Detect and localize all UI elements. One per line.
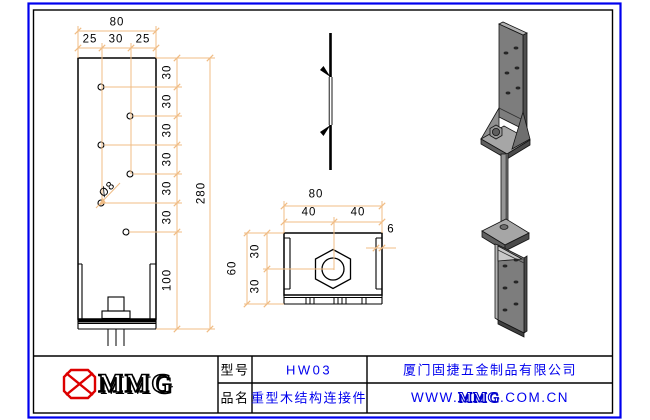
iso-view	[481, 22, 530, 337]
dim-plan-depth-seg-2: 30	[250, 279, 262, 294]
website-brand: MMG	[458, 390, 500, 406]
front-view-holes	[98, 84, 133, 235]
dim-front-total-height: 280	[196, 182, 208, 204]
dim-front-row-4: 30	[162, 152, 174, 167]
dim-front-row-5: 30	[162, 181, 174, 196]
dim-front-row-6: 30	[162, 210, 174, 225]
website-suffix: .COM.CN	[500, 390, 569, 405]
product-label: 品名	[220, 392, 249, 405]
dim-plan-half-right: 40	[351, 207, 366, 219]
product-value: 重型木结构连接件	[251, 392, 367, 405]
dim-front-row-1: 30	[162, 65, 174, 80]
dim-plan-total-depth: 60	[227, 261, 239, 276]
logo-brand-text: MMG	[98, 371, 173, 397]
dim-plan-half-left: 40	[302, 207, 317, 219]
side-view-geometry	[320, 33, 332, 170]
plan-view-dimensions	[244, 201, 396, 307]
model-label: 型号	[220, 364, 249, 377]
dim-front-bottom-row: 100	[162, 269, 174, 291]
website-prefix: WWW.	[411, 390, 458, 405]
dim-front-row-3: 30	[162, 123, 174, 138]
dim-front-total-width: 80	[110, 17, 125, 29]
dim-front-seg-left: 25	[83, 34, 98, 46]
dim-plan-thickness: 6	[387, 224, 394, 236]
dim-front-seg-right: 25	[136, 34, 151, 46]
dim-plan-depth-seg-1: 30	[250, 244, 262, 259]
front-view-dimensions	[75, 26, 215, 332]
dim-front-row-2: 30	[162, 94, 174, 109]
dim-front-seg-mid: 30	[109, 34, 124, 46]
drawing-linework	[0, 0, 650, 420]
company-name: 厦门固捷五金制品有限公司	[403, 364, 577, 377]
model-value: HW03	[286, 364, 332, 377]
section-arrow-top	[320, 66, 331, 77]
front-view-geometry	[78, 58, 156, 346]
dimension-ticks	[75, 28, 213, 332]
section-arrow-bottom	[320, 125, 331, 136]
dim-plan-total-width: 80	[309, 189, 324, 201]
logo-badge-icon	[64, 370, 95, 398]
website-url: WWW.MMG.COM.CN	[411, 390, 569, 406]
drawing-sheet: 80 25 30 25 30 30 30 30 30 30 100 280 Ø8…	[0, 0, 650, 420]
